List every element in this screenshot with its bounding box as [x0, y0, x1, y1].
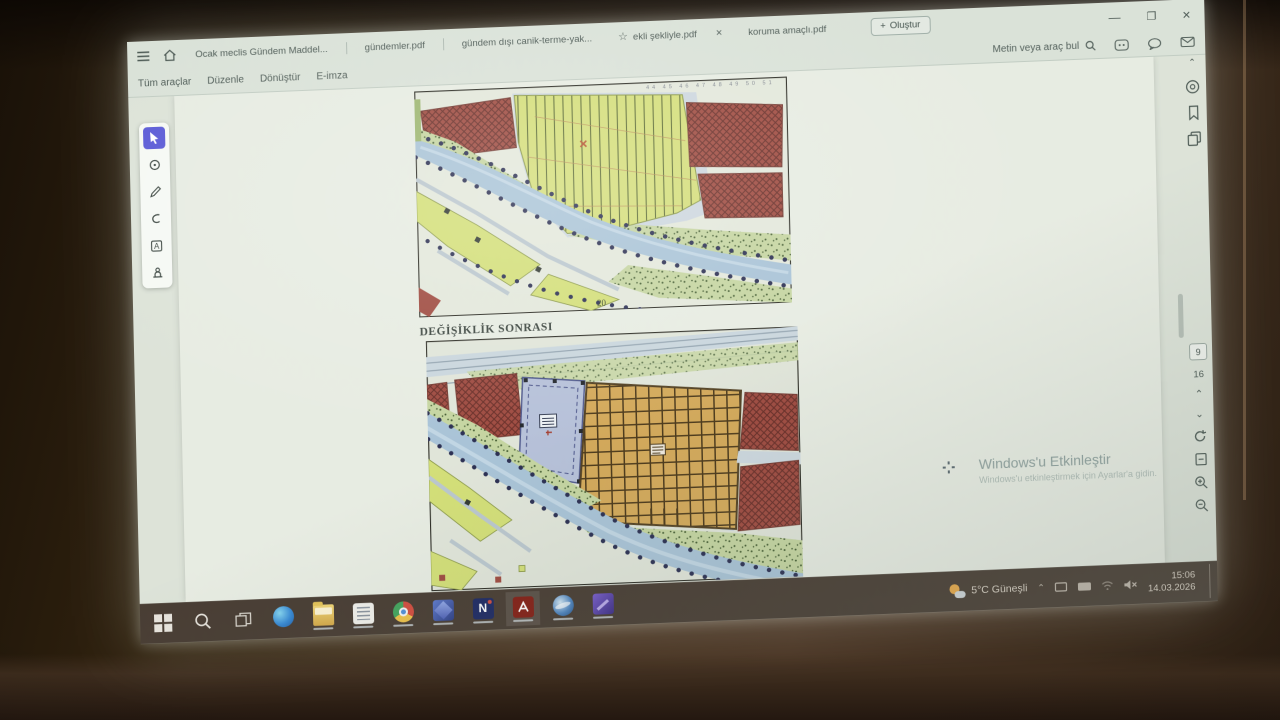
tab-close-icon[interactable]: ×: [716, 28, 723, 39]
collapse-rail-icon[interactable]: ⌃: [1188, 57, 1196, 68]
menu-item-donustur[interactable]: Dönüştür: [260, 72, 301, 85]
share-icon[interactable]: [1180, 36, 1195, 48]
system-tray: 5°C Güneşli ⌃ 15:06 14.03.2026: [949, 564, 1214, 609]
ai-assistant-icon[interactable]: [1114, 38, 1129, 51]
mouse-cursor: [943, 461, 955, 473]
pan-zoom-tool[interactable]: [144, 154, 166, 177]
tab-koruma-amacli[interactable]: koruma amaçlı.pdf: [740, 14, 835, 48]
volume-muted-icon[interactable]: [1124, 578, 1138, 590]
select-tool[interactable]: [143, 127, 165, 150]
quickbar-right: Metin veya araç bul: [992, 36, 1195, 56]
search-icon: [1085, 40, 1096, 51]
menu-item-eimza[interactable]: E-imza: [316, 70, 347, 82]
svg-text:20: 20: [597, 298, 607, 308]
map-after-change: [426, 326, 803, 591]
tab-separator: [443, 38, 444, 50]
tool-palette: A: [139, 122, 173, 288]
keyboard-tray-icon[interactable]: [1078, 581, 1092, 591]
right-rail-top: ⌃: [1184, 57, 1201, 147]
rotate-icon[interactable]: [1193, 429, 1207, 444]
taskbar-app-file-explorer[interactable]: [306, 599, 341, 634]
pages-icon[interactable]: [1187, 131, 1201, 147]
taskbar-app-acrobat[interactable]: [506, 591, 541, 626]
total-pages: 16: [1193, 369, 1204, 380]
add-text-tool[interactable]: A: [145, 235, 167, 258]
acrobat-window: Ocak meclis Gündem Maddel... gündemler.p…: [127, 0, 1217, 604]
create-button[interactable]: + Oluştur: [870, 16, 931, 36]
scrollbar-thumb[interactable]: [1178, 294, 1184, 338]
close-button[interactable]: ×: [1182, 6, 1191, 22]
window-controls: — ❐ ×: [1108, 6, 1196, 26]
tab-separator: [346, 42, 347, 54]
search-icon: [194, 612, 212, 631]
fit-page-icon[interactable]: [1194, 452, 1207, 467]
svg-text:A: A: [153, 242, 159, 251]
plus-icon: +: [880, 21, 886, 32]
tab-gundem-disi[interactable]: gündem dışı canik-terme-yak...: [453, 23, 600, 59]
wall-trim: [1243, 0, 1246, 500]
tab-gundemler[interactable]: gündemler.pdf: [356, 30, 433, 63]
draw-tool[interactable]: [144, 181, 166, 204]
home-icon[interactable]: [161, 47, 177, 64]
wall-right-panel: [1222, 0, 1280, 720]
network-tray-icon[interactable]: [1102, 580, 1114, 590]
show-desktop-button[interactable]: [1209, 564, 1214, 598]
wall-shadow-bottom: [0, 654, 1280, 720]
previous-page-icon[interactable]: ⌃: [1195, 389, 1204, 400]
document-area: A 44 45 46 47 48 49 50 51: [128, 55, 1217, 604]
taskbar-app-google-earth[interactable]: [545, 589, 580, 624]
zoom-out-icon[interactable]: [1194, 498, 1208, 513]
tab-ocak-meclis[interactable]: Ocak meclis Gündem Maddel...: [187, 34, 336, 70]
taskbar-search-button[interactable]: [186, 604, 221, 639]
hamburger-menu-icon[interactable]: [135, 48, 151, 65]
next-page-icon[interactable]: ⌄: [1195, 409, 1204, 420]
task-view-button[interactable]: [226, 602, 261, 637]
clock[interactable]: 15:06 14.03.2026: [1148, 570, 1196, 596]
search-input[interactable]: Metin veya araç bul: [992, 40, 1096, 55]
current-page-box[interactable]: 9: [1189, 343, 1207, 361]
bookmark-icon[interactable]: [1187, 105, 1199, 120]
tab-ekli-sekliyle[interactable]: ☆ ekli şekliyle.pdf ×: [610, 18, 731, 53]
weather-widget[interactable]: 5°C Güneşli: [949, 581, 1027, 598]
taskbar-app-netcad[interactable]: N: [466, 592, 501, 627]
display-tray-icon[interactable]: [1055, 581, 1068, 593]
taskbar-app-purple[interactable]: [585, 588, 620, 623]
hidden-icons-chevron[interactable]: ⌃: [1037, 582, 1045, 593]
taskbar-app-document[interactable]: [346, 597, 381, 632]
taskbar-app-blue[interactable]: [426, 594, 461, 629]
star-icon: ☆: [618, 31, 628, 42]
chat-icon[interactable]: [1147, 37, 1162, 50]
taskbar-app-chrome[interactable]: [386, 596, 421, 631]
menu-item-duzenle[interactable]: Düzenle: [207, 74, 244, 86]
weather-icon: [949, 584, 965, 599]
taskbar-app-edge[interactable]: [266, 601, 301, 636]
menu-item-tum-araclar[interactable]: Tüm araçlar: [138, 76, 192, 89]
date: 14.03.2026: [1148, 582, 1196, 596]
right-rail-nav: 9 16 ⌃ ⌄: [1189, 343, 1211, 513]
minimize-button[interactable]: —: [1108, 10, 1120, 24]
comments-icon[interactable]: [1185, 79, 1200, 95]
map-before-change: 44 45 46 47 48 49 50 51: [414, 77, 792, 318]
start-button[interactable]: [146, 605, 181, 640]
highlight-tool[interactable]: [145, 208, 167, 231]
zoom-in-icon[interactable]: [1194, 475, 1208, 490]
projector-screen: Ocak meclis Gündem Maddel... gündemler.p…: [127, 0, 1218, 644]
stamp-tool[interactable]: [146, 262, 168, 285]
maximize-button[interactable]: ❐: [1146, 9, 1156, 22]
